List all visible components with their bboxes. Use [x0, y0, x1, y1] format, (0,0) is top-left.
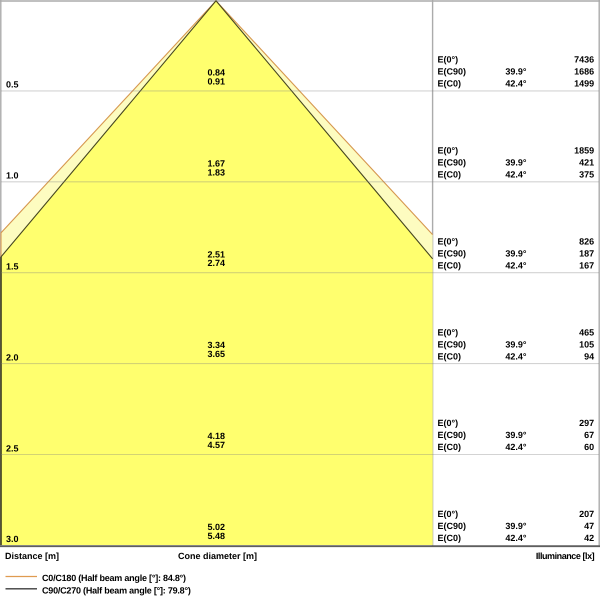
svg-text:39.9°: 39.9° — [505, 521, 527, 531]
svg-text:E(C90): E(C90) — [438, 67, 467, 77]
svg-text:3.65: 3.65 — [208, 349, 226, 359]
svg-text:67: 67 — [584, 430, 594, 440]
svg-text:375: 375 — [579, 170, 594, 180]
svg-text:60: 60 — [584, 442, 594, 452]
svg-text:C90/C270 (Half beam angle [°]:: C90/C270 (Half beam angle [°]: 79.8°) — [42, 585, 191, 595]
svg-text:47: 47 — [584, 521, 594, 531]
svg-text:E(0°): E(0°) — [438, 236, 459, 246]
svg-text:E(C90): E(C90) — [438, 339, 467, 349]
svg-text:42.4°: 42.4° — [505, 79, 527, 89]
svg-text:2.74: 2.74 — [208, 258, 226, 268]
svg-text:E(C0): E(C0) — [438, 79, 462, 89]
svg-text:39.9°: 39.9° — [505, 339, 527, 349]
svg-text:297: 297 — [579, 418, 594, 428]
svg-text:1859: 1859 — [574, 146, 594, 156]
svg-text:E(C90): E(C90) — [438, 158, 467, 168]
svg-text:E(C0): E(C0) — [438, 260, 462, 270]
svg-text:2.5: 2.5 — [6, 443, 19, 453]
svg-text:826: 826 — [579, 236, 594, 246]
svg-text:1686: 1686 — [574, 67, 594, 77]
svg-text:42.4°: 42.4° — [505, 442, 527, 452]
svg-text:42.4°: 42.4° — [505, 533, 527, 543]
svg-text:2.0: 2.0 — [6, 352, 19, 362]
svg-text:E(C90): E(C90) — [438, 521, 467, 531]
svg-text:42.4°: 42.4° — [505, 170, 527, 180]
svg-text:E(0°): E(0°) — [438, 327, 459, 337]
svg-text:7436: 7436 — [574, 55, 594, 65]
svg-text:Illuminance [lx]: Illuminance [lx] — [536, 551, 595, 561]
svg-text:Distance [m]: Distance [m] — [5, 551, 59, 561]
svg-text:1.5: 1.5 — [6, 262, 19, 272]
svg-text:465: 465 — [579, 327, 594, 337]
svg-text:0.5: 0.5 — [6, 80, 19, 90]
svg-text:207: 207 — [579, 509, 594, 519]
svg-text:5.48: 5.48 — [208, 531, 226, 541]
svg-text:187: 187 — [579, 248, 594, 258]
svg-text:E(C90): E(C90) — [438, 248, 467, 258]
svg-text:E(0°): E(0°) — [438, 418, 459, 428]
svg-text:E(0°): E(0°) — [438, 509, 459, 519]
svg-text:C0/C180 (Half beam angle [°]:: C0/C180 (Half beam angle [°]: 84.8°) — [42, 573, 186, 583]
svg-text:1499: 1499 — [574, 79, 594, 89]
svg-text:1.83: 1.83 — [208, 167, 226, 177]
svg-text:39.9°: 39.9° — [505, 158, 527, 168]
svg-text:1.0: 1.0 — [6, 171, 19, 181]
svg-text:105: 105 — [579, 339, 594, 349]
svg-text:167: 167 — [579, 260, 594, 270]
svg-text:E(0°): E(0°) — [438, 55, 459, 65]
svg-text:3.0: 3.0 — [6, 534, 19, 544]
svg-text:Cone diameter [m]: Cone diameter [m] — [178, 551, 257, 561]
svg-text:42: 42 — [584, 533, 594, 543]
svg-text:0.91: 0.91 — [208, 76, 226, 86]
svg-text:E(C0): E(C0) — [438, 170, 462, 180]
svg-text:E(C0): E(C0) — [438, 351, 462, 361]
svg-text:E(0°): E(0°) — [438, 146, 459, 156]
svg-text:94: 94 — [584, 351, 594, 361]
svg-text:421: 421 — [579, 158, 594, 168]
svg-text:39.9°: 39.9° — [505, 430, 527, 440]
svg-text:42.4°: 42.4° — [505, 260, 527, 270]
svg-text:4.57: 4.57 — [208, 440, 226, 450]
svg-text:42.4°: 42.4° — [505, 351, 527, 361]
svg-text:39.9°: 39.9° — [505, 248, 527, 258]
svg-text:E(C0): E(C0) — [438, 442, 462, 452]
svg-text:E(C90): E(C90) — [438, 430, 467, 440]
svg-text:E(C0): E(C0) — [438, 533, 462, 543]
svg-text:39.9°: 39.9° — [505, 67, 527, 77]
